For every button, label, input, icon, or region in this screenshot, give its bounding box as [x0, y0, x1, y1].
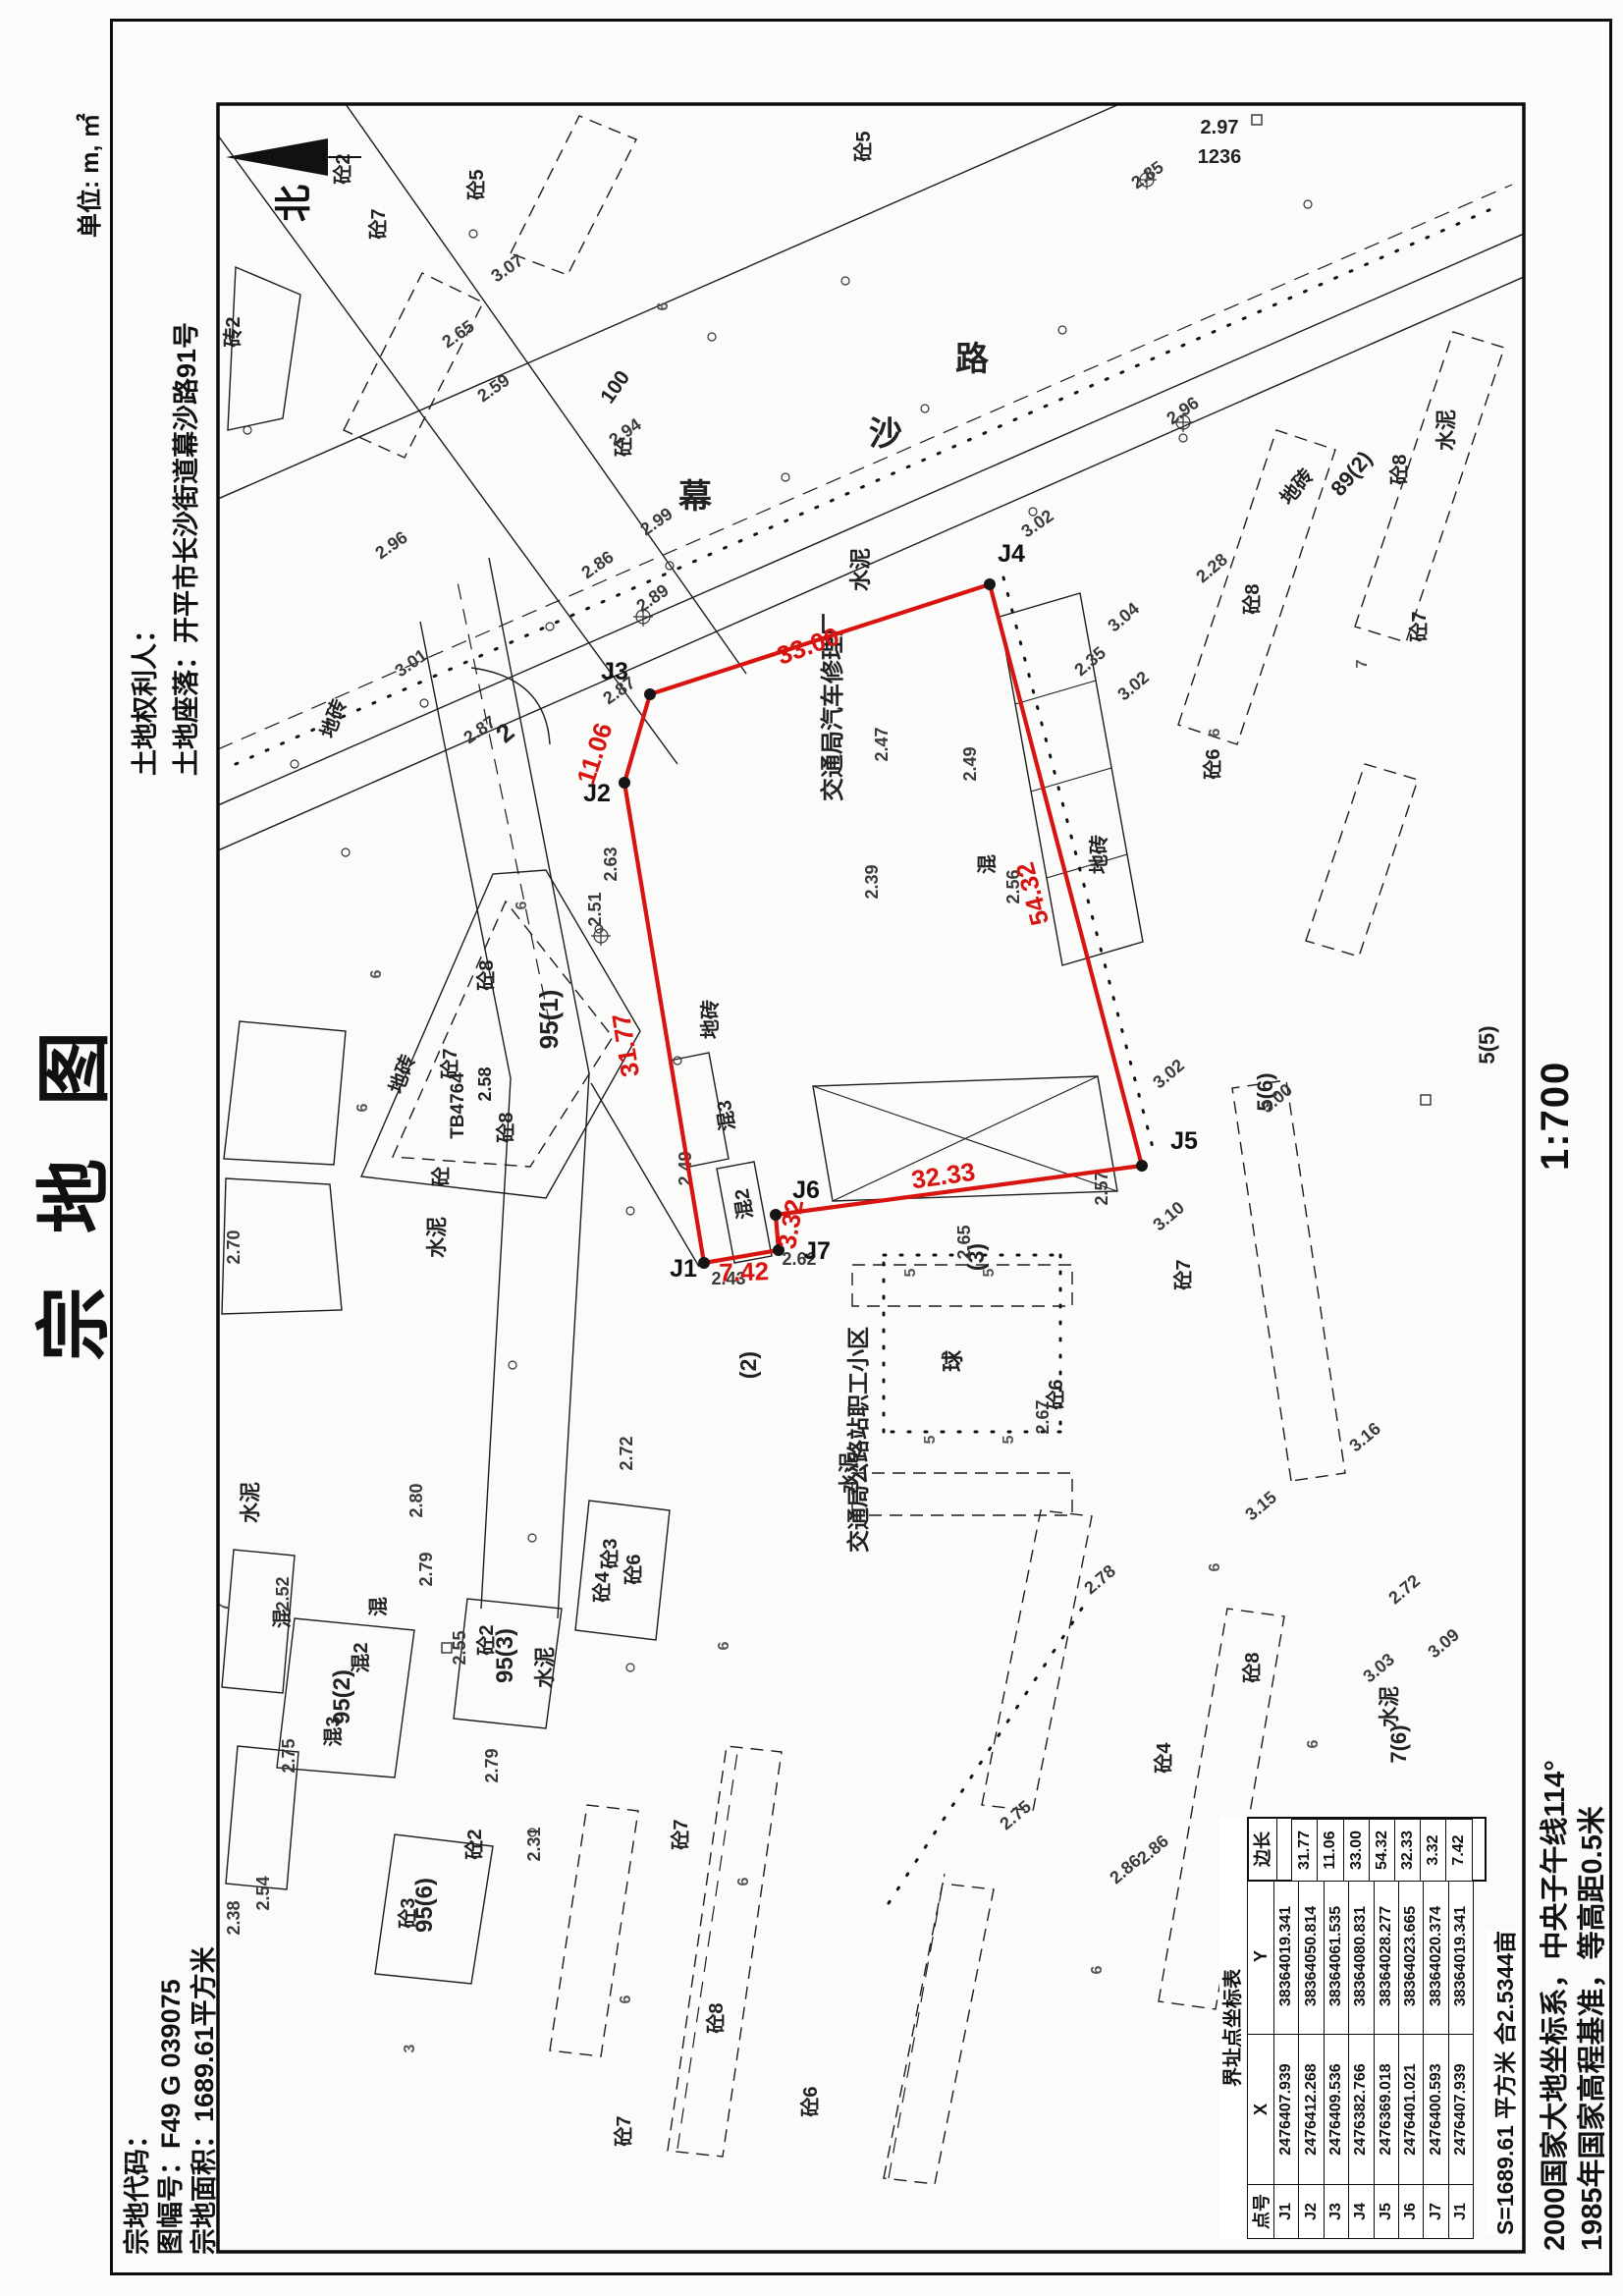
boundary-point-label: J6 — [792, 1176, 820, 1204]
map-label: 6 — [1305, 1739, 1322, 1748]
road-centerline — [889, 1874, 945, 2178]
map-label: 2.28 — [1192, 549, 1231, 586]
map-label: TB4764 — [448, 1072, 468, 1139]
map-label: 2.39 — [862, 864, 882, 899]
map-label: 砼3 — [396, 1897, 419, 1928]
area-summary: S=1689.61 平方米 合2.5344亩 — [1487, 1931, 1520, 2235]
map-label: 砼7 — [438, 1048, 461, 1078]
map-label: 7 — [1354, 659, 1371, 668]
survey-point-icon — [1179, 434, 1187, 442]
map-label: 6 — [1207, 1562, 1223, 1571]
table-cell: 38364019.341 — [1448, 1879, 1473, 2035]
map-label: 混3 — [713, 1099, 739, 1132]
map-label: 沙 — [869, 415, 902, 453]
building-outline-dashed — [982, 1510, 1092, 1811]
boundary-point-dot — [619, 777, 630, 789]
landscape-canvas: 宗地图 单位: m, ㎡ 宗地代码： 图幅号：F49 G 039075 宗地面积… — [0, 0, 1623, 2296]
building-divider — [1047, 854, 1127, 878]
map-label: 2.47 — [872, 727, 892, 761]
map-label: 砖2 — [221, 316, 244, 347]
map-label: 3.02 — [1113, 667, 1153, 704]
map-label: 水泥 — [240, 1482, 262, 1523]
map-label: 混3 — [322, 1716, 345, 1746]
map-label: 5 — [922, 1435, 939, 1444]
map-label: 6 — [716, 1641, 732, 1650]
edge-length-label: 54.32 — [1009, 859, 1055, 929]
building-outline — [575, 1501, 670, 1640]
map-label: 砼4 — [1152, 1742, 1175, 1774]
table-row: J32476409.53638364061.535 — [1324, 1879, 1348, 2239]
edge-length-value: 3.32 — [1420, 1819, 1447, 1882]
map-label: (2) — [735, 1351, 761, 1379]
edge-length-label: 31.77 — [606, 1011, 645, 1079]
map-label: 2.52 — [273, 1576, 293, 1611]
edge-length-label: 11.06 — [570, 719, 618, 788]
building-outline-dashed — [1232, 1080, 1345, 1481]
map-label: 砼7 — [669, 1819, 692, 1849]
survey-point-icon — [291, 760, 298, 768]
building-outline — [228, 267, 300, 430]
map-label: 2.78 — [1080, 1560, 1119, 1598]
table-row: J42476382.76638364080.831 — [1349, 1879, 1374, 2239]
table-cell: 2476382.766 — [1349, 2035, 1374, 2185]
building-outline-dashed — [550, 1805, 638, 2056]
map-label: 砼6 — [1201, 748, 1224, 779]
map-label: 2.72 — [1384, 1570, 1424, 1608]
building-outline-dashed — [344, 273, 483, 458]
table-cell: 2476409.536 — [1324, 2035, 1348, 2185]
map-label: 砼7 — [612, 2115, 635, 2146]
road-line — [346, 104, 746, 674]
survey-point-icon — [841, 277, 849, 285]
map-label: 2.75 — [279, 1738, 298, 1773]
map-label: 2.79 — [416, 1552, 436, 1586]
map-label: 2.65 — [954, 1225, 974, 1259]
map-label: 2.35 — [1070, 642, 1109, 680]
map-label: 砼3 — [598, 1538, 622, 1568]
table-cell: J4 — [1349, 2185, 1374, 2239]
survey-point-icon — [509, 1361, 516, 1369]
map-label: 砼2 — [462, 1829, 486, 1859]
table-cell: 2476412.268 — [1299, 2035, 1324, 2185]
table-cell: 2476400.593 — [1424, 2035, 1448, 2185]
coordinate-table-block: 界址点坐标表 点号XYJ12476407.93938364019.341J224… — [1219, 1817, 1474, 2239]
map-label: 2.70 — [224, 1230, 243, 1264]
map-label: 2.80 — [406, 1483, 426, 1517]
edge-length-value: 54.32 — [1369, 1819, 1396, 1882]
map-label: 6 — [655, 301, 672, 310]
map-label: 5(5) — [1475, 1025, 1499, 1064]
map-label: 3.15 — [1241, 1487, 1280, 1524]
edge-length-value: 7.42 — [1445, 1819, 1473, 1882]
building-outline-dashed — [1355, 332, 1504, 642]
survey-point-icon — [469, 230, 477, 238]
table-cell: J7 — [1424, 2185, 1448, 2239]
map-label: 地砖 — [384, 1052, 419, 1097]
marker-square-icon — [1252, 115, 1262, 125]
map-label: 2.75 — [996, 1796, 1035, 1833]
road-centerline — [677, 1746, 738, 2149]
map-label: 砼8 — [494, 1112, 517, 1142]
map-label: 3.09 — [1424, 1624, 1463, 1662]
map-label: 3 — [402, 2044, 418, 2052]
map-label: 2.57 — [1092, 1171, 1111, 1205]
map-label: 砼8 — [1240, 1652, 1264, 1682]
datum-note: 2000国家大地坐标系，中央子午线114° — [1532, 1760, 1573, 2251]
column-header: X — [1248, 2035, 1274, 2185]
map-scale: 1:700 — [1534, 1061, 1578, 1171]
map-label: 5 — [981, 1268, 998, 1277]
building-outline-dashed — [884, 1884, 994, 2184]
map-label: 3.10 — [1149, 1197, 1188, 1234]
map-label: 7(6) — [1386, 1724, 1411, 1763]
survey-point-icon — [420, 699, 428, 707]
building-outline-dashed — [852, 1473, 1072, 1515]
column-header: Y — [1248, 1879, 1274, 2035]
survey-point-icon — [626, 1664, 634, 1671]
map-label: 地砖 — [698, 1000, 722, 1039]
column-header: 点号 — [1248, 2185, 1274, 2239]
north-arrow-icon — [226, 138, 328, 176]
map-label: 6 — [354, 1103, 371, 1112]
boundary-point-label: J5 — [1170, 1127, 1198, 1155]
table-cell: 2476407.939 — [1448, 2035, 1473, 2185]
table-cell: J1 — [1448, 2185, 1473, 2239]
table-cell: J5 — [1374, 2185, 1398, 2239]
map-label: 2.72 — [617, 1436, 636, 1470]
map-label: 地砖 — [1087, 835, 1110, 874]
building-outline-dashed — [852, 1265, 1072, 1306]
map-label: 3.02 — [1017, 506, 1056, 541]
table-cell: 2476407.939 — [1274, 2035, 1299, 2185]
map-label: 3.07 — [487, 250, 526, 286]
table-cell: 2476401.021 — [1398, 2035, 1423, 2185]
map-label: 2.96 — [371, 527, 410, 563]
table-row: J72476400.59338364020.374 — [1424, 1879, 1448, 2239]
map-label: 2.63 — [601, 847, 621, 881]
edge-length-value: 31.77 — [1291, 1819, 1319, 1882]
boundary-point-dot — [984, 578, 996, 590]
map-label: 地砖 — [1275, 464, 1319, 509]
building-outline-dashed — [1306, 764, 1418, 957]
map-label: 6 — [1207, 728, 1223, 737]
table-cell: 38364080.831 — [1349, 1879, 1374, 2035]
table-cell: 38364023.665 — [1398, 1879, 1423, 2035]
boundary-point-label: J7 — [803, 1237, 831, 1265]
table-cell: 38364028.277 — [1374, 1879, 1398, 2035]
building-outline — [224, 1021, 346, 1165]
map-label: 1236 — [1198, 146, 1242, 168]
building-outline-dashed — [668, 1746, 782, 2157]
map-label: 2.99 — [636, 504, 676, 539]
map-label: 砼6 — [798, 2086, 822, 2116]
table-cell: 38364061.535 — [1324, 1879, 1348, 2035]
table-cell: 2476369.018 — [1374, 2035, 1398, 2185]
table-row: J12476407.93938364019.341 — [1274, 1879, 1299, 2239]
edge-length-label: 7.42 — [719, 1256, 770, 1287]
map-label: 2.54 — [253, 1876, 273, 1910]
map-label: 交通局公路站职工小区 — [845, 1327, 871, 1553]
map-label: 水泥 — [534, 1647, 557, 1688]
survey-point-icon — [243, 426, 251, 434]
map-label: 路 — [955, 341, 990, 378]
table-cell: J2 — [1299, 2185, 1324, 2239]
edge-length-column: 边长 31.7711.0633.0054.3232.333.327.42 — [1247, 1817, 1487, 1882]
table-cell: J6 — [1398, 2185, 1423, 2239]
coordinate-table-title: 界址点坐标表 — [1219, 1817, 1247, 2239]
map-label: 2.49 — [960, 746, 980, 781]
map-label: 球 — [941, 1349, 965, 1372]
map-label: 2.89 — [632, 580, 672, 616]
map-label: 3.04 — [1104, 598, 1143, 635]
table-row: J22476412.26838364050.814 — [1299, 1879, 1324, 2239]
map-label: 6 — [618, 1995, 634, 2003]
map-label: 95(1) — [534, 990, 564, 1050]
edge-length-value: 11.06 — [1317, 1819, 1344, 1882]
map-label: 水泥 — [1379, 1686, 1401, 1727]
boundary-point-dot — [644, 688, 656, 700]
map-label: 砼7 — [1407, 611, 1431, 641]
table-cell: 38364019.341 — [1274, 1879, 1299, 2035]
edge-length-value: 33.00 — [1343, 1819, 1371, 1882]
boundary-point-dot — [1136, 1160, 1148, 1172]
survey-point-icon — [528, 1534, 536, 1542]
marker-square-icon — [1421, 1095, 1431, 1105]
table-cell: J3 — [1324, 2185, 1348, 2239]
edge-length-value: 32.33 — [1394, 1819, 1422, 1882]
table-header-row: 点号XY — [1248, 1879, 1274, 2239]
map-label: 水泥 — [848, 548, 873, 591]
street-line — [489, 558, 589, 1618]
map-label: 2.31 — [524, 1827, 544, 1861]
edge-length-header: 边长 — [1249, 1819, 1277, 1880]
map-label: 砼8 — [1387, 454, 1411, 484]
map-label: 2.65 — [438, 316, 477, 352]
map-label: 2.79 — [482, 1748, 502, 1782]
map-label: 幕 — [677, 478, 713, 516]
map-label: 100 — [596, 366, 634, 408]
map-label: 6 — [368, 969, 385, 978]
map-label: 水泥 — [426, 1217, 449, 1258]
table-row: J62476401.02138364023.665 — [1398, 1879, 1423, 2239]
map-label: 砼5 — [464, 169, 488, 199]
map-label: 砼5 — [851, 131, 875, 161]
map-label: 混2 — [350, 1642, 372, 1672]
map-label: 混2 — [730, 1187, 757, 1221]
table-cell: 38364050.814 — [1299, 1879, 1324, 2035]
map-label: 砼4 — [590, 1571, 614, 1603]
table-cell: J1 — [1274, 2185, 1299, 2239]
map-label: 砼8 — [474, 959, 498, 990]
map-label: 砼 — [429, 1166, 453, 1186]
map-label: 砼6 — [622, 1554, 645, 1584]
boundary-point-label: J1 — [670, 1255, 697, 1283]
survey-point-icon — [626, 1207, 634, 1215]
map-label: 6 — [514, 901, 530, 909]
map-label: 2.51 — [585, 892, 605, 926]
map-label: 3.01 — [391, 645, 430, 681]
map-label: 6 — [1089, 1965, 1106, 1974]
road-line — [218, 234, 1524, 805]
survey-point-icon — [1304, 200, 1312, 208]
parcel-boundary — [624, 584, 1142, 1263]
table-row: J12476407.93938364019.341 — [1448, 1879, 1473, 2239]
map-label: 5 — [902, 1268, 919, 1277]
survey-point-icon — [342, 848, 350, 856]
map-label: 3.02 — [1149, 1055, 1188, 1092]
map-label: 砼7 — [366, 208, 390, 239]
table-row: J52476369.01838364028.277 — [1374, 1879, 1398, 2239]
map-label: 3.03 — [1359, 1649, 1398, 1686]
map-label: 混 — [976, 854, 999, 874]
map-label: 砼2 — [474, 1624, 498, 1655]
map-label: 2.97 — [1201, 117, 1239, 138]
map-label: 砼8 — [704, 2002, 728, 2033]
map-label: 2.59 — [473, 370, 513, 406]
map-label: 砼8 — [1240, 583, 1264, 614]
boundary-point-dot — [698, 1257, 710, 1269]
building-divider — [1015, 681, 1096, 704]
map-label: 2.38 — [224, 1900, 243, 1935]
map-label: 2.55 — [450, 1630, 469, 1665]
map-label: 2.86 — [577, 547, 617, 582]
building-outline-dashed — [511, 116, 636, 275]
boundary-point-label: J4 — [998, 540, 1025, 568]
survey-point-icon — [708, 333, 716, 341]
coordinate-table: 点号XYJ12476407.93938364019.341J22476412.2… — [1247, 1878, 1474, 2239]
map-label: 3.16 — [1345, 1418, 1384, 1455]
survey-point-icon — [921, 405, 929, 412]
map-label: 水泥 — [1435, 410, 1458, 451]
table-cell: 38364020.374 — [1424, 1879, 1448, 2035]
survey-point-icon — [782, 473, 789, 481]
map-label: 水泥 — [839, 1452, 861, 1494]
map-label: 5 — [1001, 1435, 1017, 1444]
survey-point-icon — [674, 1057, 681, 1065]
map-label: 2.58 — [475, 1066, 495, 1101]
map-label: 6 — [735, 1877, 752, 1886]
map-label: 砼2 — [331, 153, 354, 184]
survey-point-icon — [1058, 326, 1066, 334]
dotted-boundary — [889, 1604, 1085, 1903]
parcel-map-sheet: 宗地图 单位: m, ㎡ 宗地代码： 图幅号：F49 G 039075 宗地面积… — [0, 0, 1623, 2296]
north-label: 北 — [274, 185, 315, 222]
map-label: 地砖 — [315, 696, 351, 741]
survey-point-icon — [546, 623, 554, 630]
map-label: 2.67 — [1033, 1399, 1053, 1434]
map-label: 混 — [367, 1597, 390, 1616]
map-label: 砼7 — [1171, 1259, 1195, 1289]
boundary-point-label: J3 — [601, 658, 628, 685]
height-datum-note: 1985年国家高程基准，等高距0.5米 — [1569, 1806, 1610, 2251]
